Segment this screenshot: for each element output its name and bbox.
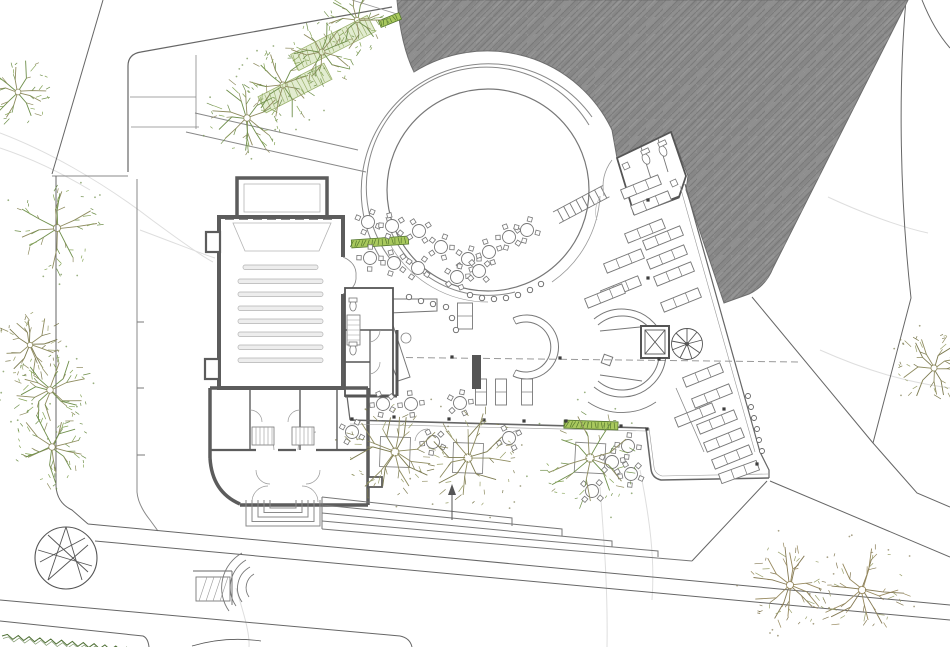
chair xyxy=(449,407,455,413)
ground-speck xyxy=(584,392,586,394)
tree-twig xyxy=(78,437,80,441)
ground-speck xyxy=(94,196,96,198)
tree-twig xyxy=(872,555,873,560)
tree-tuft xyxy=(344,76,345,79)
chair xyxy=(388,250,394,256)
tree-branch xyxy=(39,393,49,420)
tree-twig xyxy=(70,370,73,373)
tree-tuft xyxy=(818,581,819,584)
tree-trunk xyxy=(15,89,21,95)
seat-row xyxy=(238,345,323,350)
tree-tuft xyxy=(472,501,474,503)
ground-speck xyxy=(809,593,811,595)
entrance-block xyxy=(210,388,382,505)
seat-row xyxy=(238,319,323,324)
tree-tuft xyxy=(944,335,947,336)
tree-twig xyxy=(44,423,47,431)
tree-twig xyxy=(53,194,55,200)
tree-tuft xyxy=(357,437,358,440)
tree-twig xyxy=(915,346,917,353)
tree-branch xyxy=(36,415,51,444)
tree-tuft xyxy=(303,26,304,29)
tree-twig xyxy=(794,556,796,561)
ground-speck xyxy=(913,606,915,608)
tree-twig xyxy=(14,405,19,409)
ground-speck xyxy=(323,67,325,69)
tree-branch xyxy=(21,91,46,92)
tree-twig xyxy=(207,103,214,106)
ground-speck xyxy=(526,475,528,477)
tree-tuft xyxy=(760,605,763,606)
tree-tuft xyxy=(512,451,514,453)
tree-twig xyxy=(608,415,610,423)
glass-column xyxy=(443,304,448,309)
tree-twig xyxy=(796,558,799,561)
tree-twig xyxy=(417,449,424,453)
tree-twig xyxy=(10,333,14,335)
tree-twig xyxy=(229,79,236,85)
tree-tuft xyxy=(59,264,61,266)
ground-speck xyxy=(49,403,51,405)
tree-twig xyxy=(25,454,32,455)
ground-speck xyxy=(60,274,62,276)
tree-branch xyxy=(60,211,91,227)
tree-twig xyxy=(455,495,462,500)
tree-twig xyxy=(840,616,845,619)
column-dot xyxy=(392,415,395,418)
tree-twig xyxy=(815,595,820,601)
chair xyxy=(378,412,383,417)
tree-twig xyxy=(48,474,50,478)
tree-branch xyxy=(785,547,789,582)
tree-twig xyxy=(274,116,277,122)
tree-tuft xyxy=(91,208,94,209)
tree-twig xyxy=(905,341,912,347)
chair xyxy=(407,391,412,396)
chair xyxy=(387,213,392,218)
tree-twig xyxy=(415,474,419,478)
ground-speck xyxy=(833,573,835,575)
tree-twig xyxy=(246,98,250,105)
chair xyxy=(511,445,517,451)
tree-twig xyxy=(30,382,36,387)
ground-speck xyxy=(273,45,275,47)
tree-tuft xyxy=(19,445,21,448)
tree-branch xyxy=(59,230,73,257)
tree-twig xyxy=(25,316,26,320)
chair xyxy=(450,245,455,250)
tree-twig xyxy=(403,488,408,494)
tree-tuft xyxy=(80,423,83,424)
tree-branch xyxy=(0,94,16,111)
tree-twig xyxy=(580,501,583,509)
column-dot xyxy=(722,407,725,410)
display-stands xyxy=(458,303,533,405)
tree xyxy=(0,312,61,379)
chair xyxy=(368,245,373,250)
tree-twig xyxy=(434,455,440,458)
chair xyxy=(406,258,412,264)
ground-speck xyxy=(902,343,904,345)
tree-twig xyxy=(940,344,946,349)
chair xyxy=(370,403,375,408)
ground-speck xyxy=(430,399,432,401)
ground-speck xyxy=(0,399,1,401)
tree-tuft xyxy=(766,558,767,561)
tree-branch xyxy=(755,587,787,599)
tree-twig xyxy=(42,368,48,375)
tree-branch xyxy=(864,592,882,623)
tree-twig xyxy=(344,58,352,60)
tree-twig xyxy=(616,486,624,488)
tree-tuft xyxy=(361,474,364,475)
tree-twig xyxy=(446,482,452,483)
ground-speck xyxy=(93,382,95,384)
glass-column xyxy=(538,281,543,286)
tree-twig xyxy=(246,151,249,155)
ground-speck xyxy=(631,492,633,494)
tree-tuft xyxy=(899,364,901,367)
tree-tuft xyxy=(211,111,212,114)
tree-twig xyxy=(822,581,826,582)
chair xyxy=(425,429,431,435)
ground-speck xyxy=(736,585,738,587)
tree-branch xyxy=(937,369,950,371)
chair xyxy=(514,224,519,229)
tree xyxy=(893,325,950,399)
tree-branch xyxy=(212,111,244,117)
tree-twig xyxy=(842,568,844,573)
tree-branch xyxy=(10,329,28,344)
chair xyxy=(527,217,532,222)
seat-row xyxy=(238,332,323,337)
ground-speck xyxy=(76,275,78,277)
tree-twig xyxy=(42,333,51,335)
tree-twig xyxy=(23,364,28,368)
tree-twig xyxy=(561,463,569,464)
column-dot xyxy=(657,357,660,360)
tree-tuft xyxy=(331,11,332,14)
ground-speck xyxy=(242,64,244,66)
ground-speck xyxy=(893,348,895,350)
tree-twig xyxy=(66,407,72,410)
tree-branch xyxy=(53,379,85,389)
tree-tuft xyxy=(45,269,48,270)
tree-twig xyxy=(81,455,86,458)
cafe-table xyxy=(398,391,425,418)
tree-trunk xyxy=(47,387,53,393)
tree-twig xyxy=(57,248,60,254)
ground-speck xyxy=(396,506,398,508)
tree-tuft xyxy=(31,312,34,314)
tree-trunk xyxy=(858,586,866,594)
tree-twig xyxy=(64,456,68,462)
tree-twig xyxy=(893,593,897,596)
tree-twig xyxy=(349,4,353,7)
tree-tuft xyxy=(942,338,945,339)
tree-tuft xyxy=(798,622,800,624)
tree-branch xyxy=(45,393,50,421)
ground-speck xyxy=(335,439,337,441)
tree-twig xyxy=(385,467,387,474)
tree-tuft xyxy=(85,402,86,405)
ground-speck xyxy=(246,58,248,60)
chair xyxy=(339,424,345,430)
tree-twig xyxy=(907,364,911,366)
tree-tuft xyxy=(45,76,48,77)
tree-twig xyxy=(787,617,789,621)
chair xyxy=(636,445,641,450)
tree-twig xyxy=(13,338,19,339)
ground-speck xyxy=(631,422,633,424)
chair xyxy=(516,430,522,436)
ground-speck xyxy=(56,431,58,433)
chair xyxy=(410,412,415,417)
display-stand xyxy=(496,379,507,405)
tree-twig xyxy=(41,371,42,379)
tree-twig xyxy=(57,207,65,211)
glass-column xyxy=(453,327,458,332)
tree-twig xyxy=(610,479,614,483)
tree-tuft xyxy=(767,548,768,551)
site-plan-drawing xyxy=(0,0,950,647)
tree-twig xyxy=(324,11,329,17)
tree-tuft xyxy=(289,55,291,57)
tree-twig xyxy=(32,397,35,401)
ground-speck xyxy=(59,283,61,285)
tree-tuft xyxy=(4,118,7,119)
tree-twig xyxy=(266,85,267,93)
tree-twig xyxy=(51,460,53,467)
tree-twig xyxy=(39,85,43,90)
tree-twig xyxy=(506,445,513,446)
ground-speck xyxy=(365,408,367,410)
tree-twig xyxy=(402,414,408,417)
tree-twig xyxy=(228,105,231,112)
chair xyxy=(379,256,384,261)
tree-tuft xyxy=(53,484,55,486)
misc-site-features xyxy=(2,527,133,647)
tree-tuft xyxy=(810,619,811,622)
tree-twig xyxy=(65,444,70,447)
spiral-stair xyxy=(672,329,703,360)
tree-twig xyxy=(31,65,36,72)
tree-twig xyxy=(39,363,43,368)
tree-branch xyxy=(53,392,82,401)
auditorium-building xyxy=(205,178,356,388)
tree-tuft xyxy=(549,483,552,484)
tree-twig xyxy=(459,486,464,492)
ground-speck xyxy=(772,629,774,631)
tree-tuft xyxy=(900,599,901,602)
tree-tuft xyxy=(757,611,760,612)
tree-twig xyxy=(28,247,30,255)
tree-twig xyxy=(71,412,75,415)
seat-row xyxy=(238,279,323,284)
chair xyxy=(618,474,623,479)
tree-twig xyxy=(57,269,61,277)
chair xyxy=(462,410,468,416)
tree-tuft xyxy=(916,336,917,339)
tree-twig xyxy=(253,63,259,66)
facade-column xyxy=(752,416,757,421)
tree-twig xyxy=(381,470,382,474)
ground-speck xyxy=(7,199,9,201)
tree-twig xyxy=(869,568,877,570)
glass-column xyxy=(467,292,472,297)
tree-branch xyxy=(15,67,17,89)
tree-twig xyxy=(755,573,763,577)
chair xyxy=(438,431,444,437)
chair xyxy=(355,215,361,221)
tree-twig xyxy=(453,474,457,476)
seat-row xyxy=(243,265,318,270)
tree-twig xyxy=(836,563,837,569)
ground-speck xyxy=(367,497,369,499)
ground-speck xyxy=(203,135,205,137)
chair xyxy=(535,230,540,235)
bookshelf xyxy=(683,363,724,387)
tree-tuft xyxy=(268,52,270,55)
tree-twig xyxy=(552,489,556,492)
ground-speck xyxy=(256,50,258,52)
tree-trunk xyxy=(931,365,937,371)
glass-column xyxy=(503,295,508,300)
chair xyxy=(497,246,503,252)
cafe-table xyxy=(420,429,446,455)
tree-twig xyxy=(35,63,39,65)
tree-tuft xyxy=(210,126,212,128)
tree-tuft xyxy=(265,53,266,56)
glass-column xyxy=(406,294,411,299)
tree-twig xyxy=(945,361,950,365)
tree-tuft xyxy=(317,22,319,24)
tree-twig xyxy=(443,423,446,430)
tree-tuft xyxy=(371,47,372,50)
ground-speck xyxy=(900,339,902,341)
tree-twig xyxy=(11,63,12,68)
tree-twig xyxy=(555,481,564,482)
tree-twig xyxy=(789,609,792,613)
media-wall xyxy=(472,355,481,389)
chair xyxy=(442,234,448,240)
direction-arrow xyxy=(448,484,456,495)
tree-twig xyxy=(36,95,42,97)
tree-twig xyxy=(214,106,222,109)
tree-tuft xyxy=(355,46,358,48)
tree-twig xyxy=(383,429,387,437)
chair xyxy=(496,235,501,240)
tree-twig xyxy=(448,462,451,466)
tree-twig xyxy=(307,23,309,31)
tree-twig xyxy=(69,406,75,407)
chair xyxy=(459,390,464,395)
chair xyxy=(400,267,406,273)
ground-speck xyxy=(238,68,240,70)
entry-step xyxy=(252,500,314,522)
ground-speck xyxy=(851,534,853,536)
tree-branch xyxy=(22,209,54,227)
ground-speck xyxy=(513,501,515,503)
chair xyxy=(638,476,644,482)
planting-strip xyxy=(564,420,618,430)
ground-speck xyxy=(827,556,829,558)
tree-trunk xyxy=(27,342,32,347)
glass-column xyxy=(527,287,532,292)
tree-twig xyxy=(307,91,314,96)
tree-twig xyxy=(31,230,39,234)
tree-tuft xyxy=(83,460,84,463)
tree-branch xyxy=(843,564,861,588)
column-dot xyxy=(755,462,758,465)
tree-twig xyxy=(269,135,272,140)
chair xyxy=(469,246,475,252)
chair xyxy=(627,433,632,438)
column-dot xyxy=(564,419,567,422)
ground-speck xyxy=(509,507,511,509)
seat-row xyxy=(238,358,323,363)
tree-branch xyxy=(17,391,48,397)
tree-twig xyxy=(35,114,42,116)
ground-speck xyxy=(3,371,5,373)
tree-branch xyxy=(7,347,28,354)
tree-tuft xyxy=(823,597,824,600)
tree-tuft xyxy=(503,490,504,493)
exhibit-c-wall xyxy=(513,315,559,379)
tree-branch xyxy=(55,441,78,447)
tree-tuft xyxy=(370,45,371,48)
tree-twig xyxy=(92,213,97,215)
tree-twig xyxy=(41,418,43,423)
ground-speck xyxy=(56,488,58,490)
tree-twig xyxy=(264,63,266,71)
annex-rooms xyxy=(345,288,397,396)
tree-twig xyxy=(26,231,31,232)
chord-circle-feature xyxy=(35,527,97,589)
tree-twig xyxy=(831,624,839,625)
tree-tuft xyxy=(514,470,515,473)
chair xyxy=(357,255,362,260)
column-dot xyxy=(522,419,525,422)
chair xyxy=(367,267,372,272)
tree-tuft xyxy=(619,494,620,497)
tree-branch xyxy=(52,231,57,269)
tree-branch xyxy=(793,586,819,607)
chord-line xyxy=(40,538,85,562)
tree-twig xyxy=(310,31,312,36)
column-dot xyxy=(646,276,649,279)
tree-twig xyxy=(301,113,304,118)
tree-twig xyxy=(440,489,446,494)
tree-twig xyxy=(358,35,359,39)
planting-strip xyxy=(350,236,409,248)
tree-twig xyxy=(77,227,83,230)
tree-tuft xyxy=(66,190,69,191)
tree-tuft xyxy=(40,479,43,480)
chord-line xyxy=(48,535,88,572)
column-dot xyxy=(619,424,622,427)
tree-tuft xyxy=(72,414,73,417)
tree-twig xyxy=(797,545,798,553)
ground-speck xyxy=(849,536,851,538)
tree-tuft xyxy=(398,493,400,495)
tree-twig xyxy=(884,623,887,628)
tree-twig xyxy=(914,364,918,367)
tree-tuft xyxy=(27,121,29,123)
tree-twig xyxy=(560,431,567,434)
tree-branch xyxy=(33,345,53,352)
chair xyxy=(388,271,394,277)
